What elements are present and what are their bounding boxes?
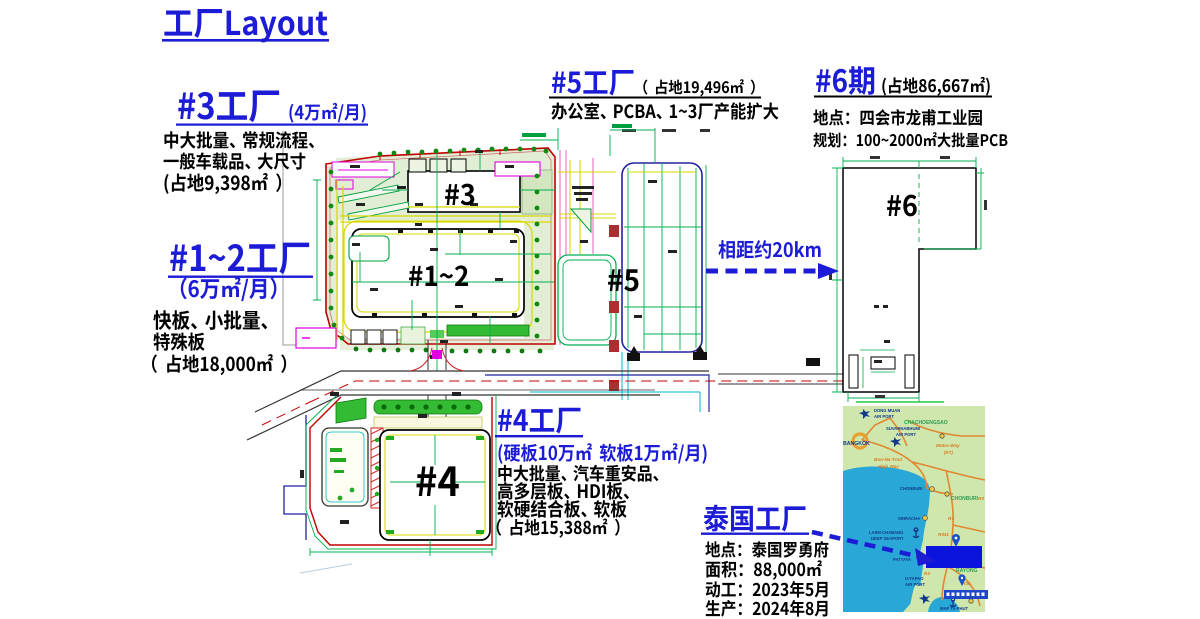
svg-text:LAEM CHABANG: LAEM CHABANG [869, 530, 903, 535]
svg-text:Motor-Way: Motor-Way [936, 443, 960, 448]
svg-text:SUVARNABHUMI: SUVARNABHUMI [886, 426, 920, 431]
svg-text:R3: R3 [978, 496, 984, 501]
svg-text:BANGKOK: BANGKOK [843, 441, 870, 447]
svg-text:CHONBURI: CHONBURI [900, 486, 923, 491]
svg-text:AIR PORT: AIR PORT [905, 582, 925, 587]
svg-text:AIR PORT: AIR PORT [896, 432, 916, 437]
svg-text:CHONBURI: CHONBURI [951, 496, 979, 502]
svg-text:R331: R331 [938, 532, 949, 537]
svg-text:High Way: High Way [878, 464, 899, 469]
svg-text:R3: R3 [924, 571, 930, 576]
svg-text:RAYONG: RAYONG [956, 568, 978, 574]
svg-text:AIR PORT: AIR PORT [874, 414, 894, 419]
svg-text:SRIRACHA: SRIRACHA [898, 516, 920, 521]
svg-text:DEEP SEAPORT: DEEP SEAPORT [871, 536, 904, 541]
svg-text:Bon-Na-Trod: Bon-Na-Trod [874, 457, 902, 462]
svg-text:(K7): (K7) [944, 450, 953, 455]
svg-text:DONG MUAN: DONG MUAN [874, 408, 900, 413]
svg-text:R7: R7 [948, 516, 954, 521]
svg-text:PATTAYA: PATTAYA [893, 557, 911, 562]
svg-text:CHACHOENGSAO: CHACHOENGSAO [904, 420, 948, 426]
svg-text:U-TAPAO: U-TAPAO [905, 576, 924, 581]
